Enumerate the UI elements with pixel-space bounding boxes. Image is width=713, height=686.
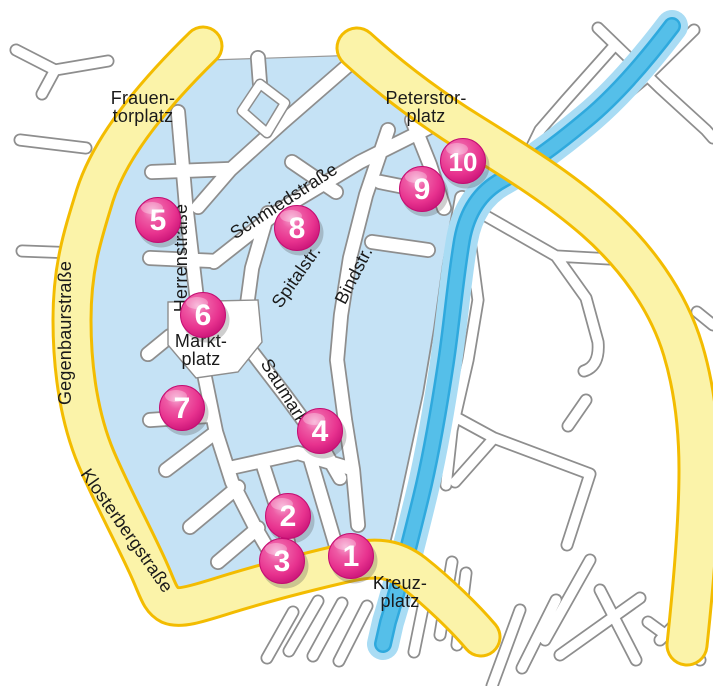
marker-number: 5	[150, 204, 167, 237]
marker-number: 8	[289, 212, 306, 245]
city-map: Frauen-torplatzPeterstor-platzMarkt-plat…	[0, 0, 713, 686]
marker-number: 3	[274, 545, 291, 578]
marker-number: 2	[280, 500, 297, 533]
label-kreuzplatz: Kreuz-platz	[373, 573, 427, 611]
marker-number: 1	[343, 540, 360, 573]
marker-number: 4	[312, 415, 329, 448]
marker-number: 10	[449, 147, 478, 177]
label-gegenbaurstrasse: Gegenbaurstraße	[55, 261, 75, 405]
label-frauentorplatz: Frauen-torplatz	[111, 88, 175, 126]
map-canvas: Frauen-torplatzPeterstor-platzMarkt-plat…	[0, 0, 713, 686]
marker-number: 7	[174, 392, 191, 425]
marker-number: 6	[195, 299, 212, 332]
marker-number: 9	[414, 173, 431, 206]
